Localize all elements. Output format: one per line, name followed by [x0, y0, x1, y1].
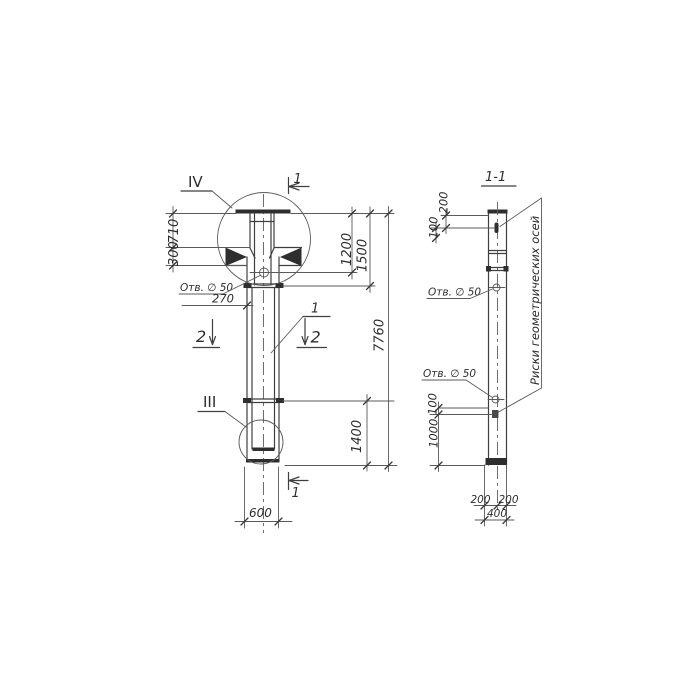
detail-IV-text: IV: [188, 173, 203, 191]
inner-bottom-plate: [253, 448, 275, 452]
section-bottom-plate: [486, 458, 508, 465]
axis-mark-bottom: [493, 411, 499, 418]
front-left-dimensions: 710 300 Отв. ∅ 50 270: [166, 207, 260, 310]
detail-label-III: III: [198, 393, 246, 427]
dim-300: 300: [167, 241, 182, 266]
dim-600: 600: [249, 506, 272, 520]
axis-mark-top: [495, 223, 499, 234]
dim-1000: 1000: [427, 419, 441, 448]
cut-2-right-text: 2: [311, 328, 321, 347]
section-hole-labels: Отв. ∅ 50 Отв. ∅ 50: [422, 287, 493, 398]
section-hole-label-bottom: Отв. ∅ 50: [423, 368, 476, 380]
section-title-text: 1-1: [485, 170, 506, 185]
bracket-left: [226, 248, 248, 267]
axes-note: Риски геометрических осей: [499, 198, 543, 412]
cap-plate: [236, 210, 291, 214]
detail-III-text: III: [203, 393, 216, 411]
pole-outline: [250, 214, 274, 286]
position-1-text: 1: [311, 302, 319, 317]
section-title: 1-1: [482, 170, 517, 186]
bracket-right: [274, 248, 302, 267]
cut-mark-1-bottom: 1: [289, 473, 309, 502]
axes-note-text: Риски геометрических осей: [528, 215, 542, 385]
cut-mark-2-right: 2: [297, 319, 327, 348]
technical-drawing-sheet: IV III 1 1 2: [0, 0, 700, 700]
dim-1200: 1200: [340, 233, 355, 266]
detail-circle-IV: [218, 193, 311, 286]
section-view: 1-1: [422, 170, 542, 526]
cut-mark-1-top: 1: [289, 172, 310, 194]
dim-200-bottom-left: 200: [471, 494, 491, 506]
joint-lower: [243, 398, 284, 403]
front-right-dimensions: 1200 1500 7760 1400: [270, 207, 397, 472]
dim-1400: 1400: [350, 420, 365, 453]
section-bottom-dimensions: 200 200 400: [471, 465, 519, 526]
dim-400: 400: [487, 508, 507, 520]
section-body: [486, 202, 509, 512]
pole-foundation-drawing: IV III 1 1 2: [0, 0, 700, 700]
dim-100-top: 100: [427, 217, 441, 239]
dim-710: 710: [167, 219, 182, 244]
section-topleft-dimensions: 200 100: [427, 192, 495, 243]
dim-200-top: 200: [437, 192, 451, 214]
cut-1-bottom-text: 1: [292, 486, 300, 501]
detail-label-IV: IV: [181, 173, 232, 208]
section-bottomleft-dimensions: 100 1000: [426, 393, 492, 471]
dim-1500: 1500: [356, 239, 371, 272]
front-view: IV III 1 1 2: [166, 172, 397, 533]
dim-200-bottom-right: 200: [499, 494, 519, 506]
cut-mark-2-left: 2: [193, 320, 220, 348]
dim-7760: 7760: [373, 319, 388, 352]
dim-270: 270: [212, 292, 234, 306]
position-leader-1: 1: [271, 302, 330, 354]
cut-1-top-text: 1: [294, 172, 302, 187]
cut-2-left-text: 2: [196, 327, 206, 346]
dim-100-bottom: 100: [426, 393, 440, 415]
